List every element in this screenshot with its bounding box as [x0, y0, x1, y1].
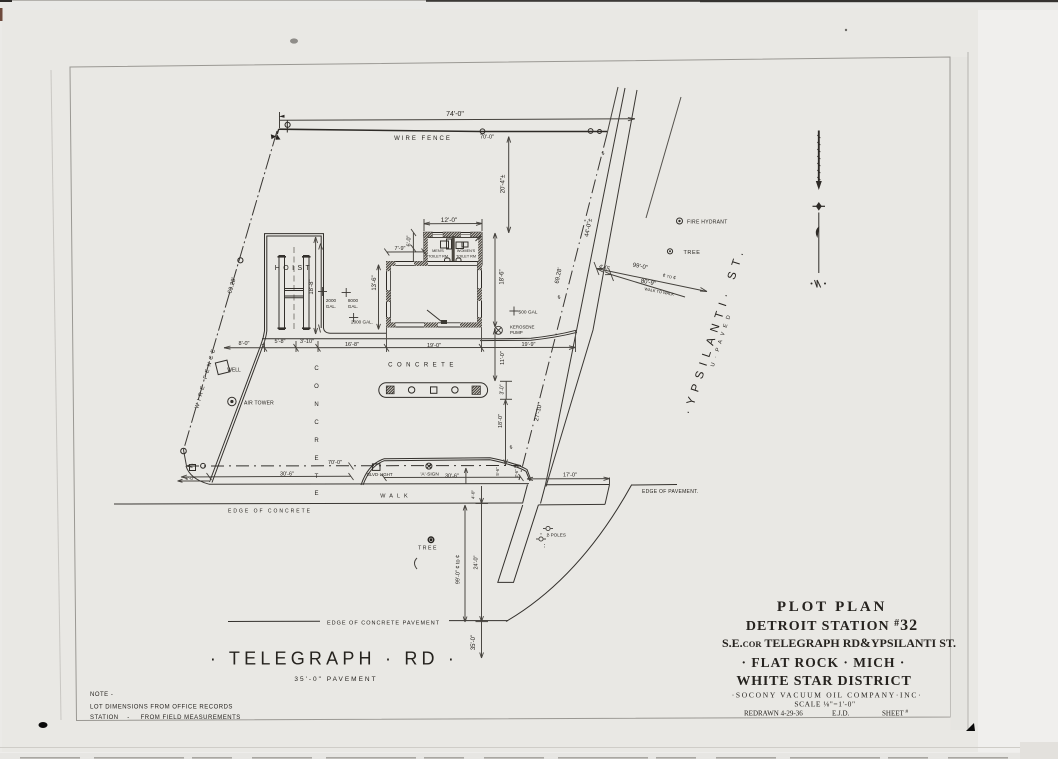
- svg-text:6'-0": 6'-0": [186, 476, 195, 481]
- svg-text:4'-0": 4'-0": [471, 490, 476, 499]
- svg-text:LOT DIMENSIONS FROM OFFICE REC: LOT DIMENSIONS FROM OFFICE RECORDS: [90, 705, 233, 711]
- svg-text:·SOCONY VACUUM OIL COMPANY·INC: ·SOCONY VACUUM OIL COMPANY·INC·: [732, 691, 923, 700]
- svg-text:70'-0": 70'-0": [480, 135, 494, 141]
- svg-text:74'-0": 74'-0": [446, 111, 464, 118]
- svg-text:TOILET RM: TOILET RM: [456, 255, 476, 259]
- svg-text:N: N: [314, 402, 318, 408]
- svg-text:C: C: [314, 366, 319, 372]
- svg-text:AIR TOWER: AIR TOWER: [244, 401, 274, 407]
- svg-text:E: E: [314, 491, 318, 497]
- svg-text:HOIST: HOIST: [275, 265, 313, 272]
- svg-text:2000: 2000: [326, 298, 337, 303]
- svg-text:KEROSENE: KEROSENE: [510, 325, 534, 330]
- svg-text:19'-0": 19'-0": [427, 343, 441, 349]
- svg-text:5'-8": 5'-8": [275, 339, 286, 345]
- svg-text:NOTE -: NOTE -: [90, 692, 113, 698]
- svg-text:17'-0": 17'-0": [563, 473, 577, 479]
- svg-text:30'-6": 30'-6": [280, 472, 294, 478]
- svg-text:DETROIT STATION #32: DETROIT STATION #32: [746, 617, 918, 634]
- svg-text:8'-0": 8'-0": [239, 341, 250, 347]
- svg-text:TOILET RM: TOILET RM: [428, 255, 448, 259]
- svg-text:500 GAL: 500 GAL: [519, 310, 538, 316]
- svg-text:13'-6": 13'-6": [372, 275, 378, 290]
- svg-text:WIRE FENCE: WIRE FENCE: [394, 136, 452, 142]
- svg-text:EDGE OF PAVEMENT.: EDGE OF PAVEMENT.: [642, 489, 699, 495]
- svg-text:2·POLES: 2·POLES: [547, 533, 566, 538]
- svg-text:CONCRETE: CONCRETE: [388, 363, 458, 369]
- svg-text:35'-0": 35'-0": [471, 635, 477, 650]
- svg-text:'A'·SIGN: 'A'·SIGN: [421, 472, 440, 478]
- svg-text:PLOT PLAN: PLOT PLAN: [777, 599, 887, 615]
- svg-text:5'-6": 5'-6": [495, 467, 500, 476]
- svg-text:WOMEN'S: WOMEN'S: [457, 249, 476, 253]
- svg-text:18'-6": 18'-6": [500, 269, 506, 284]
- svg-text:70'-0": 70'-0": [328, 460, 342, 466]
- svg-text:EDGE OF CONCRETE PAVEMENT: EDGE OF CONCRETE PAVEMENT: [327, 621, 440, 627]
- svg-text:16'-8": 16'-8": [345, 342, 359, 348]
- svg-text:12'-0": 12'-0": [441, 217, 458, 224]
- svg-text:30'-6": 30'-6": [445, 474, 459, 480]
- svg-text:T: T: [315, 474, 319, 480]
- svg-text:EDGE OF CONCRETE: EDGE OF CONCRETE: [228, 509, 312, 515]
- svg-text:24'-0": 24'-0": [474, 555, 480, 569]
- svg-text:· FLAT ROCK · MICH ·: · FLAT ROCK · MICH ·: [742, 655, 906, 670]
- svg-text:18'-0": 18'-0": [498, 414, 504, 428]
- svg-text:19'-9": 19'-9": [521, 342, 535, 348]
- svg-text:11'-0": 11'-0": [500, 351, 506, 365]
- svg-text:STATION - FROM FIELD ME: STATION - FROM FIELD MEASUREMENTS: [90, 715, 241, 721]
- svg-text:20'-4"±: 20'-4"±: [501, 174, 507, 193]
- svg-text:WELL: WELL: [227, 368, 241, 374]
- svg-text:35'-0" PAVEMENT: 35'-0" PAVEMENT: [294, 676, 377, 683]
- svg-text:GAL.: GAL.: [348, 304, 358, 309]
- svg-text:WALK: WALK: [380, 494, 411, 500]
- svg-text:GAL.: GAL.: [326, 304, 336, 309]
- svg-text:O: O: [314, 384, 319, 390]
- svg-text:REDRAWN 4-29-36: REDRAWN 4-29-36: [744, 710, 803, 718]
- svg-text:TREE: TREE: [418, 546, 438, 552]
- svg-text:7'-9": 7'-9": [395, 246, 406, 252]
- svg-text:3'-0": 3'-0": [500, 384, 506, 394]
- svg-text:18'-8": 18'-8": [309, 279, 315, 294]
- svg-text:WHITE STAR DISTRICT: WHITE STAR DISTRICT: [736, 674, 911, 689]
- svg-text:SCALE ⅛"=1'-0": SCALE ⅛"=1'-0": [794, 700, 855, 709]
- svg-text:3'-10": 3'-10": [300, 339, 314, 345]
- svg-text:2'-6": 2'-6": [514, 469, 519, 478]
- svg-text:PUMP: PUMP: [510, 330, 523, 335]
- svg-text:2000 GAL.: 2000 GAL.: [351, 320, 373, 325]
- svg-text:BLVD·LIGHT: BLVD·LIGHT: [367, 472, 393, 477]
- svg-text:SHEET #: SHEET #: [882, 709, 908, 718]
- svg-text:E.J.D.: E.J.D.: [832, 710, 850, 718]
- svg-text:E: E: [314, 456, 318, 462]
- svg-text:R: R: [314, 438, 319, 444]
- svg-text:8000: 8000: [348, 298, 359, 303]
- svg-text:· TELEGRAPH · RD ·: · TELEGRAPH · RD ·: [210, 649, 458, 669]
- svg-text:MEN'S: MEN'S: [432, 249, 444, 253]
- svg-text:C: C: [314, 420, 319, 426]
- svg-text:99'-0" ¢ to ¢: 99'-0" ¢ to ¢: [456, 555, 462, 584]
- svg-text:6'-0": 6'-0": [407, 235, 413, 246]
- svg-text:TREE: TREE: [683, 250, 700, 256]
- svg-text:FIRE HYDRANT: FIRE HYDRANT: [687, 220, 728, 226]
